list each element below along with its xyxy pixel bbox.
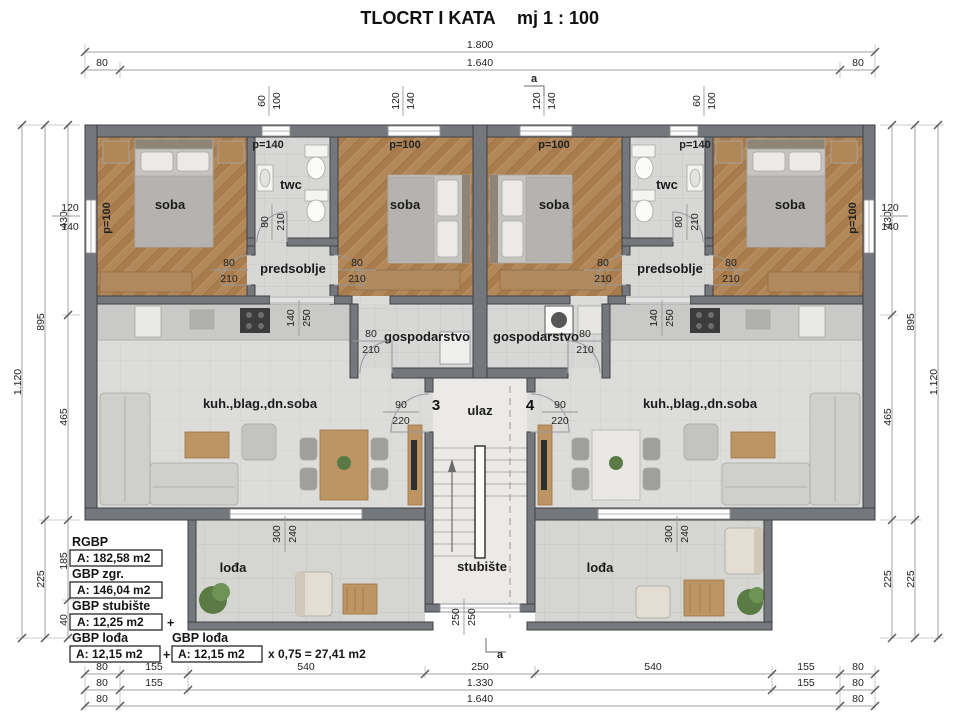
svg-text:80: 80 [852,57,864,69]
room-label-living-2: kuh.,blag.,dn.soba [643,396,758,411]
parapet-label-twc-1: p=140 [252,139,284,151]
room-label-loggia-2: lođa [587,560,614,575]
svg-text:140: 140 [546,92,558,110]
dimension-top: 1.800 80 1.640 80 60 100 120 140 120 140… [81,39,879,116]
svg-text:250: 250 [466,608,478,626]
svg-text:80: 80 [725,257,737,269]
svg-text:90: 90 [554,399,566,411]
svg-text:225: 225 [905,570,917,588]
plus-sign-2: + [163,648,170,662]
parapet-label-bedroom-2: p=100 [389,139,421,151]
plan-title: TLOCRT I KATA [360,8,495,28]
svg-text:210: 210 [722,273,740,285]
svg-text:465: 465 [58,408,70,426]
gbp-zgr-label: GBP zgr. [72,567,124,581]
svg-text:90: 90 [395,399,407,411]
parapet-label-bedroom-3: p=100 [538,139,570,151]
svg-text:210: 210 [576,344,594,356]
svg-text:80: 80 [351,257,363,269]
svg-text:140: 140 [285,309,297,327]
svg-text:300: 300 [663,525,675,543]
svg-text:540: 540 [644,661,662,673]
svg-text:225: 225 [882,570,894,588]
svg-text:140: 140 [648,309,660,327]
room-label-toilet-2: twc [656,177,678,192]
plan-scale: mj 1 : 100 [517,8,599,28]
section-marker-bottom: a [497,649,504,661]
svg-text:80: 80 [852,661,864,673]
svg-text:300: 300 [271,525,283,543]
svg-text:60: 60 [256,95,268,107]
svg-text:1.800: 1.800 [467,39,493,51]
svg-text:250: 250 [664,309,676,327]
gbp-zgr-value: A: 146,04 m2 [77,583,151,597]
svg-text:1.330: 1.330 [467,677,493,689]
gbp-loda-label-1: GBP lođa [72,631,129,645]
room-label-toilet-1: twc [280,177,302,192]
parapet-label-bedroom-1: p=100 [101,202,113,234]
room-label-bedroom-2: soba [390,197,421,212]
svg-text:250: 250 [471,661,489,673]
room-label-hall-2: predsoblje [637,261,703,276]
svg-text:465: 465 [882,408,894,426]
room-label-hall-1: predsoblje [260,261,326,276]
svg-text:140: 140 [61,221,79,233]
svg-text:155: 155 [145,677,163,689]
svg-text:80: 80 [96,57,108,69]
gbp-stubiste-value: A: 12,25 m2 [77,615,144,629]
svg-text:240: 240 [679,525,691,543]
svg-text:80: 80 [597,257,609,269]
svg-text:210: 210 [220,273,238,285]
svg-text:210: 210 [594,273,612,285]
svg-text:120: 120 [881,202,899,214]
svg-text:80: 80 [852,677,864,689]
svg-text:155: 155 [797,661,815,673]
svg-text:1.120: 1.120 [928,369,940,395]
svg-text:80: 80 [852,693,864,705]
svg-text:210: 210 [275,213,287,231]
room-label-entrance: ulaz [467,403,493,418]
svg-text:60: 60 [691,95,703,107]
room-label-utility-1: gospodarstvo [384,329,470,344]
svg-text:140: 140 [881,221,899,233]
svg-text:40: 40 [58,614,70,626]
gbp-loda-value-2: A: 12,15 m2 [178,647,245,661]
svg-text:80: 80 [96,677,108,689]
svg-text:1.640: 1.640 [467,693,493,705]
svg-text:1.640: 1.640 [467,57,493,69]
parapet-label-twc-2: p=140 [679,139,711,151]
svg-text:220: 220 [392,415,410,427]
svg-text:100: 100 [706,92,718,110]
plus-sign-1: + [167,616,174,630]
svg-text:80: 80 [96,693,108,705]
svg-text:540: 540 [297,661,315,673]
svg-text:140: 140 [405,92,417,110]
svg-text:220: 220 [551,415,569,427]
svg-text:240: 240 [287,525,299,543]
svg-text:80: 80 [673,216,685,228]
svg-text:895: 895 [35,313,47,331]
svg-text:120: 120 [61,202,79,214]
stair-railing [475,446,485,558]
apartment-number-4: 4 [526,397,535,414]
room-label-bedroom-1: soba [155,197,186,212]
svg-text:120: 120 [390,92,402,110]
svg-text:210: 210 [689,213,701,231]
svg-text:155: 155 [797,677,815,689]
parapet-label-bedroom-4: p=100 [847,202,859,234]
loda-formula: x 0,75 = 27,41 m2 [268,647,366,661]
gbp-loda-label-2: GBP lođa [172,631,229,645]
room-label-bedroom-3: soba [539,197,570,212]
section-marker-top: a [531,73,538,85]
room-label-staircase: stubište [457,559,507,574]
svg-text:100: 100 [271,92,283,110]
dimension-right: 430 465 225 895 225 1.120 120 140 [880,121,944,642]
svg-text:250: 250 [301,309,313,327]
svg-text:80: 80 [96,661,108,673]
svg-text:210: 210 [362,344,380,356]
apartment-number-3: 3 [432,397,440,414]
svg-text:80: 80 [579,328,591,340]
svg-text:80: 80 [365,328,377,340]
svg-text:210: 210 [348,273,366,285]
svg-text:250: 250 [450,608,462,626]
svg-text:80: 80 [259,216,271,228]
rgbp-value: A: 182,58 m2 [77,551,151,565]
room-label-loggia-1: lođa [220,560,247,575]
room-label-bedroom-4: soba [775,197,806,212]
svg-text:225: 225 [35,570,47,588]
rgbp-label: RGBP [72,535,108,549]
floor-plan-drawing: TLOCRT I KATA mj 1 : 100 [0,0,960,717]
svg-text:185: 185 [58,552,70,570]
svg-text:80: 80 [223,257,235,269]
svg-text:120: 120 [531,92,543,110]
svg-text:155: 155 [145,661,163,673]
svg-text:1.120: 1.120 [12,369,24,395]
gbp-stubiste-label: GBP stubište [72,599,150,613]
room-label-utility-2: gospodarstvo [493,329,579,344]
gbp-loda-value-1: A: 12,15 m2 [76,647,143,661]
svg-text:895: 895 [905,313,917,331]
room-label-living-1: kuh.,blag.,dn.soba [203,396,318,411]
